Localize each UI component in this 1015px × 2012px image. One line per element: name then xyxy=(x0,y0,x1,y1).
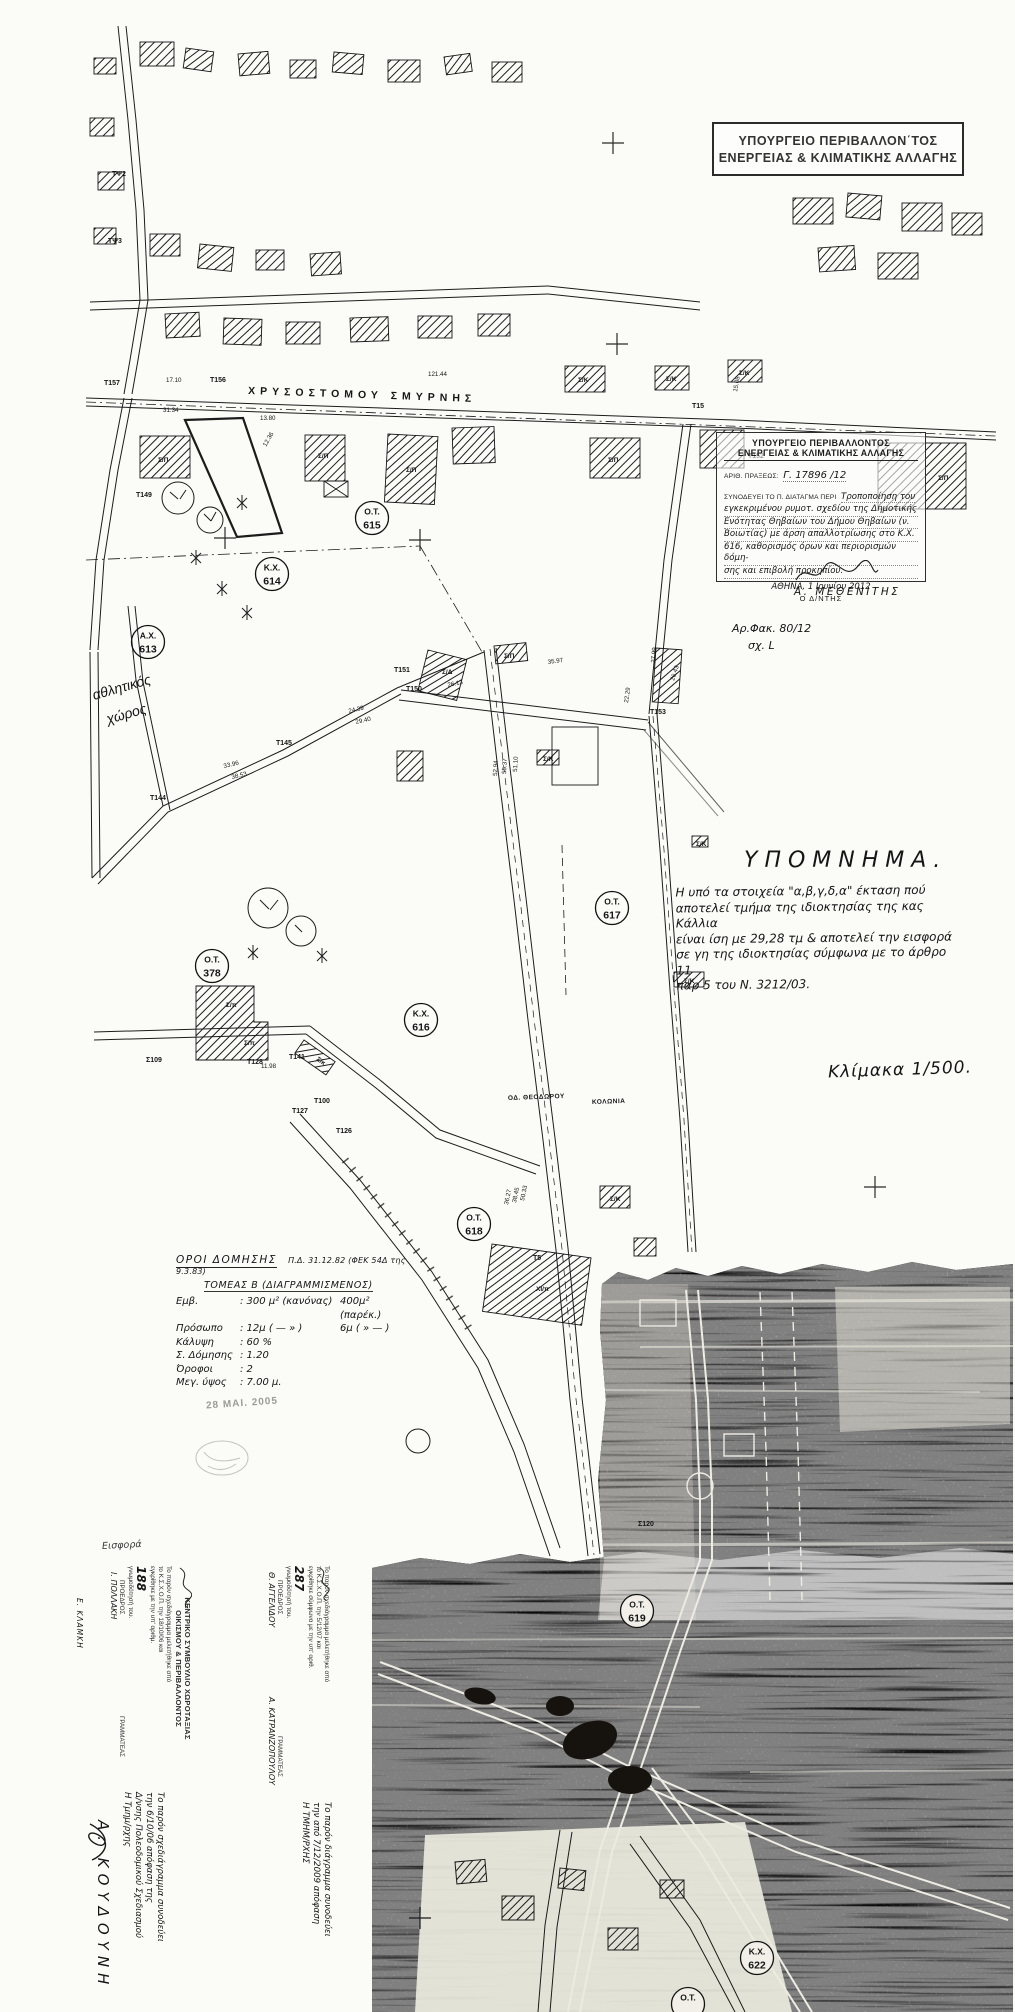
signature-koudouni-block: Α. ΚΟΥΔΟΥΝΗ xyxy=(93,1820,112,1980)
council1-body-line: 188 xyxy=(134,1566,147,1771)
block-kind-label: Ο.Τ. xyxy=(364,507,380,517)
dimension-label: 17.10 xyxy=(166,377,182,384)
dimension-label: 15.08 xyxy=(732,375,742,392)
legend-line: αποτελεί τμήμα της ιδιοκτησίας της κας Κ… xyxy=(676,898,954,932)
council1-signature xyxy=(176,1566,192,1610)
margin-note: Εισφορά xyxy=(102,1539,142,1552)
act-number-value: Γ. 17896 /12 xyxy=(783,470,846,482)
bottom-note-left-line: την 6/10/06 απόφαση της xyxy=(143,1792,154,1952)
survey-point-label: Τ151 xyxy=(394,667,410,674)
building-term-cell: : 7.00 μ. xyxy=(240,1376,340,1390)
file-number: Αρ.Φακ. 80/12 xyxy=(732,620,811,637)
block-kind-label: Κ.Χ. xyxy=(749,1947,766,1957)
block-kind-label: Ο.Τ. xyxy=(204,955,220,965)
council-stamp-2: Το παρόν σχεδιάγραμμα μελετήθηκε απότο Κ… xyxy=(267,1566,330,1791)
legend-line: σε γη της ιδιοκτησίας σύμφωνα με το άρθρ… xyxy=(676,945,954,979)
block-circle-378: Ο.Τ.378 xyxy=(196,950,229,983)
survey-point-label: Τ100 xyxy=(314,1098,330,1105)
council2-body-line: 287 xyxy=(292,1566,305,1791)
dimension-label: 50.33 xyxy=(519,1184,529,1201)
bottom-note-center-line: την από 7/12/2009 απόφαση xyxy=(310,1802,321,1952)
building-term-cell: 400μ² (παρέκ.) xyxy=(340,1295,406,1322)
building-type-label: Σ/Κ xyxy=(543,756,554,763)
block-circle-617: Ο.Τ.617 xyxy=(596,892,629,925)
block-circle-622: Κ.Χ.622 xyxy=(741,1942,774,1975)
council2-role-right: ΓΡΑΜΜΑΤΕΑΣ xyxy=(275,1736,283,1777)
dimension-label: 27.99 xyxy=(650,647,658,664)
council1-secretary-name: Ι. ΠΟΛΛΑΚΗ xyxy=(109,1572,117,1619)
building-term-row: Εμβ.: 300 μ² (κανόνας)400μ² (παρέκ.) xyxy=(176,1295,406,1322)
survey-point-label: Τ157 xyxy=(104,380,120,387)
dimension-label: 11.98 xyxy=(261,1063,277,1070)
council2-signature xyxy=(316,1566,330,1602)
survey-point-label: Τ15 xyxy=(692,403,704,410)
decree-subject-line: Βοιωτίας) με άρση απαλλοτρίωσης στο Κ.Χ. xyxy=(724,529,918,542)
building-type-label: Σ/Κ xyxy=(666,376,677,383)
survey-point-label: ΤΨ2 xyxy=(112,171,126,178)
survey-point-label: Τ141 xyxy=(289,1054,305,1061)
building-term-cell: : 300 μ² (κανόνας) xyxy=(240,1295,340,1322)
building-type-label: Σ/π xyxy=(244,1040,255,1047)
council1-body-line: Το παρόν σχεδιάγραμμα μελετήθηκε από xyxy=(164,1566,172,1771)
legend-body: Η υπό τα στοιχεία "α,β,γ,δ,α" έκταση πού… xyxy=(675,883,954,994)
dimension-label: 33.96 xyxy=(223,760,240,770)
survey-point-label: Τ144 xyxy=(150,795,166,802)
building-term-row: Όροφοι: 2 xyxy=(176,1363,406,1377)
block-number-label: 615 xyxy=(363,520,381,532)
director-signature-name: Α. ΜΕΘΕΝΙΤΗΣ xyxy=(794,586,900,598)
athletic-area-label: αθλητικόςχώρος xyxy=(90,671,152,728)
building-term-cell xyxy=(340,1349,406,1363)
dimension-label: 31.34 xyxy=(163,407,179,414)
dimension-label: 121.44 xyxy=(428,371,447,378)
block-circle-613: Α.Χ.613 xyxy=(132,626,165,659)
building-type-label: Σ/Δ xyxy=(442,669,453,676)
block-kind-label: Κ.Χ. xyxy=(264,563,281,573)
block-circle-616: Κ.Χ.616 xyxy=(405,1004,438,1037)
block-kind-label: Α.Χ. xyxy=(140,631,157,641)
stamp-ministry-line2: ΕΝΕΡΓΕΙΑΣ & ΚΛΙΜΑΤΙΚΗΣ ΑΛΛΑΓΗΣ xyxy=(724,448,918,461)
building-term-cell: Πρόσωπο xyxy=(176,1322,240,1336)
building-type-label: Σ/Κ xyxy=(610,1196,621,1203)
building-term-cell: Κάλυψη xyxy=(176,1336,240,1350)
building-type-label: Σ/Π xyxy=(938,475,949,482)
building-term-cell: Σ. Δόμησης xyxy=(176,1349,240,1363)
bush-symbols xyxy=(191,495,327,963)
block-kind-label: Ο.Τ. xyxy=(466,1213,482,1223)
dimension-label: 51.10 xyxy=(512,756,520,772)
director-signature xyxy=(792,560,882,588)
sheet-code: σχ. L xyxy=(748,637,811,654)
building-type-label: Σ/Π xyxy=(608,457,619,464)
block-number-label: 616 xyxy=(412,1022,430,1034)
building-type-label: Σ/Π xyxy=(406,467,417,474)
block-circle-618: Ο.Τ.618 xyxy=(458,1208,491,1241)
building-term-cell: : 1.20 xyxy=(240,1349,340,1363)
ministry-line2: ΕΝΕΡΓΕΙΑΣ & ΚΛΙΜΑΤΙΚΗΣ ΑΛΛΑΓΗΣ xyxy=(714,150,962,167)
bottom-note-left-line: Δ/νσης Πολεοδομικού Σχεδιασμού xyxy=(132,1792,143,1952)
building-term-cell xyxy=(340,1336,406,1350)
survey-point-label: Σ109 xyxy=(146,1057,162,1064)
block-kind-label: Ο.Τ. xyxy=(604,897,620,907)
left-margin-name: Ε. ΚΛΑΜΚΗ xyxy=(75,1598,84,1678)
council2-secretary-name: Α. ΚΑΤΡΑΝΖΟΠΟΥΛΟΥ xyxy=(267,1697,275,1785)
faint-stamp-remnant xyxy=(196,1441,248,1475)
block-kind-label: Ο.Τ. xyxy=(629,1600,645,1610)
building-term-row: Κάλυψη: 60 % xyxy=(176,1336,406,1350)
building-term-cell: Εμβ. xyxy=(176,1295,240,1322)
survey-point-label: Τ5 xyxy=(533,1255,541,1262)
stamp-ministry-line1: ΥΠΟΥΡΓΕΙΟ ΠΕΡΙΒΑΛΛΟΝΤΟΣ xyxy=(724,438,918,448)
athletic-area-text: αθλητικός xyxy=(90,671,152,703)
street-name-label: ΚΟΛΩΝΙΑ xyxy=(592,1098,626,1106)
dimension-label: 38.53 xyxy=(231,771,248,781)
scanned-urban-plan-sheet: ΤΨ2ΤΨ3Τ157Τ156Τ15Τ152Τ149Τ151Τ150Τ153Τ14… xyxy=(0,0,1015,2012)
block-kind-label: Κ.Χ. xyxy=(413,1009,430,1019)
building-terms-block: ΟΡΟΙ ΔΟΜΗΣΗΣ Π.Δ. 31.12.82 (ΦΕΚ 54Δ της … xyxy=(176,1254,406,1390)
building-term-row: Πρόσωπο: 12μ ( — » )6μ ( » — ) xyxy=(176,1322,406,1336)
block-number-label: 614 xyxy=(263,576,281,588)
legend-title: ΥΠΟΜΝΗΜΑ. xyxy=(744,848,947,873)
dimension-label: 13.80 xyxy=(260,415,276,422)
building-term-cell: Μεγ. ύψος xyxy=(176,1376,240,1390)
ministry-line1: ΥΠΟΥΡΓΕΙΟ ΠΕΡΙΒΑΛΛΟΝ΄ΤΟΣ xyxy=(714,133,962,150)
block-number-label: 617 xyxy=(603,910,621,922)
buildings-layer xyxy=(90,42,982,1325)
ministry-title-box: ΥΠΟΥΡΓΕΙΟ ΠΕΡΙΒΑΛΛΟΝ΄ΤΟΣ ΕΝΕΡΓΕΙΑΣ & ΚΛΙ… xyxy=(712,122,964,176)
street-name-label: ΟΔ. ΘΕΟΔΩΡΟΥ xyxy=(508,1093,565,1102)
survey-point-label: Τ126 xyxy=(336,1128,352,1135)
dimension-label: 55.37 xyxy=(501,758,509,774)
council2-president-name: Θ. ΑΓΓΕΛΙΔΟΥ xyxy=(267,1572,275,1627)
building-term-cell: : 60 % xyxy=(240,1336,340,1350)
dimension-label: 29.40 xyxy=(355,716,372,726)
building-term-cell: Όροφοι xyxy=(176,1363,240,1377)
dimension-label: 24.39 xyxy=(348,705,365,715)
terms-title: ΟΡΟΙ ΔΟΜΗΣΗΣ xyxy=(176,1254,277,1268)
building-term-row: Σ. Δόμησης: 1.20 xyxy=(176,1349,406,1363)
council1-body-line: το Κ.Σ.Χ.Ο.Π. την 18/10/06 και xyxy=(156,1566,164,1771)
block-circle-615: Ο.Τ.615 xyxy=(356,502,389,535)
athletic-area-text: χώρος xyxy=(102,700,148,727)
building-type-label: Σ/Π xyxy=(504,653,515,660)
building-type-label: Σ/Κ xyxy=(696,841,707,848)
survey-point-label: ΤΨ3 xyxy=(108,238,122,245)
block-number-label: 378 xyxy=(203,968,221,980)
koudouni-signature xyxy=(82,1820,112,1862)
building-type-label: Σ/Π xyxy=(318,453,329,460)
building-term-cell: : 12μ ( — » ) xyxy=(240,1322,340,1336)
street-name-labels: ΧΡΥΣΟΣΤΟΜΟΥ ΣΜΥΡΝΗΣΟΔ. ΘΕΟΔΩΡΟΥΚΟΛΩΝΙΑ xyxy=(248,385,626,1106)
dimension-label: 22.29 xyxy=(623,686,632,703)
block-circle-614: Κ.Χ.614 xyxy=(256,558,289,591)
decree-subject-line: εγκεκριμένου ρυμοτ. σχεδίου της Δημοτική… xyxy=(724,504,918,517)
act-number-label: ΑΡΙΘ. ΠΡΑΞΕΩΣ: xyxy=(724,473,779,480)
council1-body-line: εγκρίθηκε με την υπ' αριθμ. xyxy=(147,1566,155,1771)
block-kind-label: Ο.Τ. xyxy=(680,1993,696,2003)
survey-point-label: Τ149 xyxy=(136,492,152,499)
survey-point-label: Σ120 xyxy=(638,1521,654,1528)
survey-point-label: Τ156 xyxy=(210,377,226,384)
decree-label: ΣΥΝΟΔΕΥΕΙ ΤΟ Π. ΔΙΑΤΑΓΜΑ ΠΕΡΙ xyxy=(724,494,837,501)
building-term-cell xyxy=(340,1363,406,1377)
block-number-label: 619 xyxy=(628,1613,646,1625)
bottom-note-center-line: Η ΤΜΗΜ/ΡΧΗΣ xyxy=(299,1802,310,1952)
survey-point-label: Τ127 xyxy=(292,1108,308,1115)
council1-role-right: ΓΡΑΜΜΑΤΕΑΣ xyxy=(117,1716,125,1757)
block-circle-619: Ο.Τ.619 xyxy=(621,1595,654,1628)
bottom-note-center: Το παρόν διάγραμμα συνοδεύειτην από 7/12… xyxy=(299,1802,332,1952)
survey-point-label: Τ153 xyxy=(650,709,666,716)
file-reference: Αρ.Φακ. 80/12 σχ. L xyxy=(732,620,811,654)
council-stamp-1: ΚΕΝΤΡΙΚΟ ΣΥΜΒΟΥΛΙΟ ΧΩΡΟΤΑΞΙΑΣ ΟΙΚΙΣΜΟΥ &… xyxy=(109,1566,192,1771)
survey-point-label: Τ145 xyxy=(276,740,292,747)
decree-subject-line: Ενότητας Θηβαίων του Δήμου Θηβαίων (ν. xyxy=(724,517,918,530)
block-number-label: 613 xyxy=(139,644,157,656)
survey-point-label: Τ150 xyxy=(406,686,422,693)
building-type-label: Σ/Π xyxy=(158,457,169,464)
building-type-label: Σ/Κ xyxy=(578,377,589,384)
council1-body-line: γνωμοδότησή του. xyxy=(126,1566,134,1771)
council2-role-left: ΠΡΟΕΔΡΟΣ xyxy=(275,1580,283,1614)
council2-body-line: εγκρίθηκε σύμφωνα με την υπ' αριθ. xyxy=(305,1566,313,1791)
building-type-label: Σ/π xyxy=(226,1002,237,1009)
photocopy-region xyxy=(372,1262,1013,2012)
building-term-cell xyxy=(340,1376,406,1390)
decree-subject-line: Τροποποίηση του xyxy=(841,492,915,503)
bottom-note-center-line: Το παρόν διάγραμμα συνοδεύει xyxy=(321,1802,332,1952)
bottom-note-left-line: Το παρόν σχεδιάγραμμα συνοδεύει xyxy=(154,1792,165,1952)
bottom-note-left-line: Η Τμημ/ρχης xyxy=(121,1792,132,1952)
terms-sector: ΤΟΜΕΑΣ Β (ΔΙΑΓΡΑΜΜΙΣΜΕΝΟΣ) xyxy=(204,1280,373,1292)
dimension-label: 35.97 xyxy=(547,657,564,666)
dimension-label: 52.94 xyxy=(492,760,500,776)
building-term-cell: 6μ ( » — ) xyxy=(340,1322,406,1336)
block-number-label: 618 xyxy=(465,1226,483,1238)
building-type-label: Σ/Κ xyxy=(739,370,750,377)
block-number-label: 622 xyxy=(748,1960,766,1972)
council2-body-line: γνωμοδότησή του. xyxy=(284,1566,292,1791)
building-term-row: Μεγ. ύψος: 7.00 μ. xyxy=(176,1376,406,1390)
bottom-note-left: Το παρόν σχεδιάγραμμα συνοδεύειτην 6/10/… xyxy=(121,1792,165,1952)
building-type-label: ΧΙ/π xyxy=(536,1286,549,1293)
council1-role-left: ΠΡΟΕΔΡΟΣ xyxy=(117,1580,125,1614)
legend-line: παρ 5 του Ν. 3212/03. xyxy=(676,976,954,994)
dimension-label: 12.36 xyxy=(262,431,276,448)
street-name-label: ΧΡΥΣΟΣΤΟΜΟΥ ΣΜΥΡΝΗΣ xyxy=(248,385,477,405)
building-term-cell: : 2 xyxy=(240,1363,340,1377)
